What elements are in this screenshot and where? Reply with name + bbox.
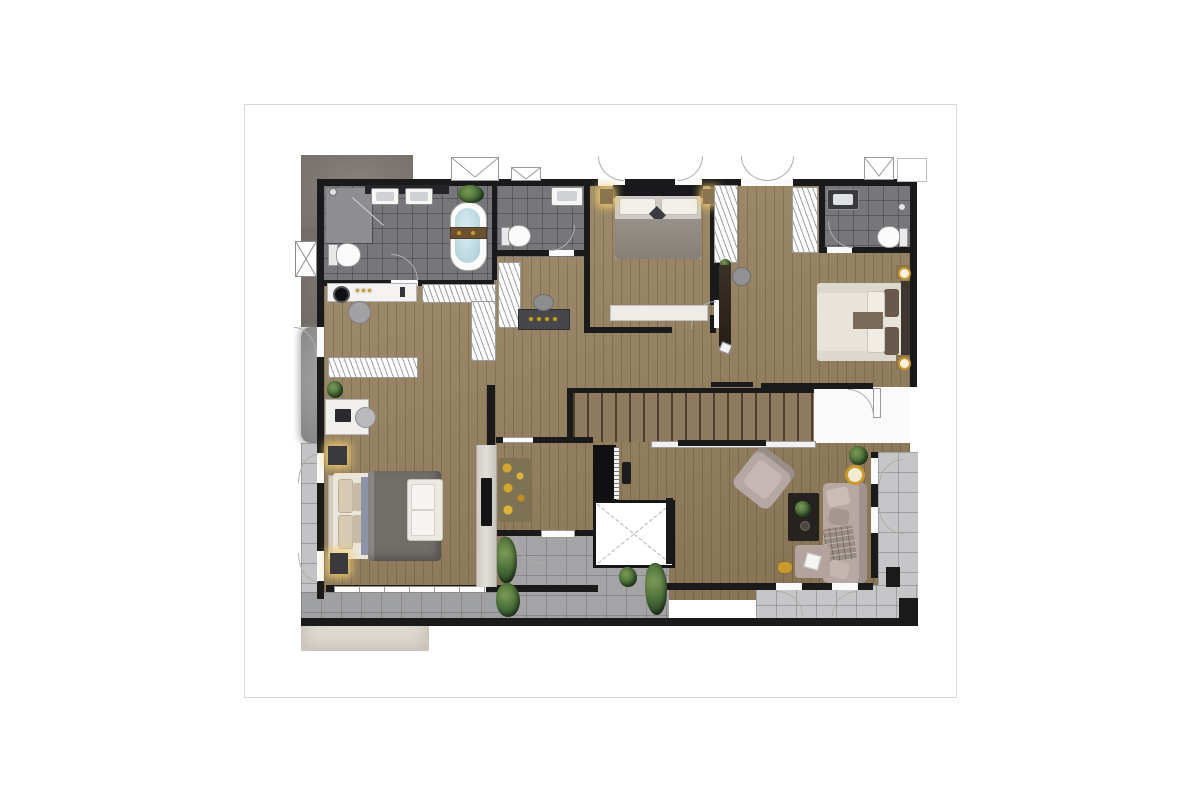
door-gap-living-bottom-a — [776, 583, 802, 590]
sofa-cushion — [411, 484, 435, 510]
vanity-bottle — [400, 287, 405, 297]
side-table-gold — [845, 465, 865, 485]
sink-1 — [371, 188, 399, 205]
window-living-right-a — [871, 458, 878, 484]
door-arc-closet-r — [767, 156, 794, 181]
vanity-item — [356, 289, 359, 292]
sink-basin — [557, 191, 577, 201]
wall-right — [910, 179, 917, 387]
vanity-item — [362, 289, 365, 292]
opening-sitting-top — [503, 437, 533, 443]
elevator-x-icon — [596, 503, 672, 565]
bed2-headboard — [901, 281, 910, 363]
window-living-right-b — [871, 507, 878, 533]
door-leaf-terrace — [541, 530, 575, 538]
vanity-item — [368, 289, 371, 292]
window-top-3 — [864, 157, 894, 180]
sofa-gold — [498, 458, 531, 522]
sideboard-knob — [545, 317, 549, 321]
wall-living-top — [678, 440, 766, 446]
door-gap-bath3 — [827, 247, 852, 253]
faucet-icon-bath3 — [898, 203, 906, 211]
plant-bathtub — [458, 185, 484, 203]
door-gap-master-balcony-b — [317, 551, 324, 581]
desk-chair — [355, 407, 376, 428]
plant-terrace-small — [619, 567, 637, 587]
sink-bath3 — [827, 189, 859, 210]
wall-corner-block-2 — [899, 598, 918, 620]
sofa-cushion — [411, 510, 435, 536]
sofa-master — [407, 479, 443, 541]
door-arc-closet-l — [741, 156, 768, 181]
plant-desk — [327, 381, 343, 398]
toilet-tank — [899, 228, 908, 247]
laptop-icon — [335, 409, 351, 422]
bed2 — [817, 281, 910, 363]
wall-mid-horizontal-2 — [711, 382, 753, 387]
bed2-runner — [853, 312, 883, 329]
shower-enclosure — [326, 188, 373, 244]
armchair-cushion — [742, 459, 784, 501]
bed1 — [613, 185, 703, 261]
door-arc-bedroom1-b — [677, 156, 703, 181]
wall-bottom-outer — [301, 618, 918, 626]
elevator-shaft — [593, 500, 675, 568]
window-frame-top-right — [897, 158, 927, 182]
toilet-bowl — [508, 225, 531, 247]
tray-icon — [800, 521, 810, 531]
wall-tv-spine — [487, 385, 495, 447]
bed1-pillow — [661, 198, 698, 215]
wardrobe-closet-right — [792, 187, 818, 253]
door-gap-living-bottom-b — [832, 583, 858, 590]
vanity-mirror — [333, 286, 350, 303]
piano-keys — [614, 447, 619, 499]
sink-basin — [833, 194, 853, 205]
staircase — [573, 392, 814, 442]
sideboard-knob — [529, 317, 533, 321]
sofa-pillow — [828, 508, 850, 527]
door-leaf-bedroom2 — [873, 388, 881, 418]
coffee-table-living — [788, 493, 819, 541]
bed-master-pillow — [338, 479, 353, 513]
door-gap-master-balcony-a — [317, 453, 324, 483]
wall-bath1-2-divider — [492, 183, 497, 280]
wall-living-left — [666, 498, 673, 564]
bed2-pillow-brown — [884, 289, 899, 317]
gold-lamp-icon — [898, 267, 911, 280]
window-band-master-bottom — [334, 586, 486, 593]
tv-icon — [481, 478, 492, 526]
floor-plan-page — [244, 104, 957, 698]
vanity-counter — [327, 283, 417, 302]
vanity-chair — [348, 301, 371, 324]
stool-closet — [732, 267, 751, 286]
sink-2 — [405, 188, 433, 205]
ottoman-living — [795, 545, 830, 578]
gold-pot-terrace — [778, 562, 792, 573]
nightstand-bed1-left — [600, 189, 613, 204]
window-left-x — [295, 241, 317, 277]
toilet-2 — [501, 225, 531, 246]
wall-mid-horizontal — [761, 383, 873, 389]
sideboard-hall — [518, 309, 570, 330]
nightstand-bed2-top — [896, 265, 910, 279]
plant-balcony-bottom-left — [496, 583, 520, 617]
console-closet — [719, 265, 731, 347]
ottoman-paper — [803, 552, 821, 570]
sofa-pillow — [825, 486, 850, 508]
piano — [593, 445, 616, 501]
wardrobe-dressing-side — [471, 301, 496, 361]
nightstand-master-bottom — [330, 553, 348, 574]
toilet-1 — [328, 242, 360, 266]
plant-coffee-table — [795, 501, 811, 517]
plant-terrace-left — [497, 537, 517, 583]
bathtub — [450, 202, 487, 271]
caddy-item — [457, 231, 461, 235]
door-arc-bedroom1-a — [598, 156, 624, 181]
bathtub-caddy — [450, 227, 487, 239]
wall-corner-block-1 — [886, 567, 900, 587]
stair-post — [567, 388, 573, 442]
window-top-2 — [511, 167, 541, 181]
toilet-3 — [877, 226, 907, 247]
bed2-pillow-white — [867, 325, 885, 353]
wall-bedroom1-left — [584, 183, 590, 333]
bench-bedroom1 — [610, 305, 708, 321]
toilet-bowl — [877, 226, 900, 248]
sink-basin — [410, 192, 428, 201]
sofa-pillow — [827, 559, 851, 580]
sideboard-knob — [553, 317, 557, 321]
shower-head-icon — [329, 188, 337, 196]
caddy-item — [471, 231, 475, 235]
door-gap-bath2 — [549, 250, 574, 256]
plant-terrace-center — [645, 563, 667, 615]
wardrobe-dressing-long — [328, 357, 418, 378]
gold-lamp-icon — [898, 357, 911, 370]
wall-closet-right — [819, 183, 825, 253]
wall-left — [317, 179, 324, 599]
nightstand-master-top — [328, 446, 347, 465]
window-top-1 — [451, 157, 499, 181]
sink-basin — [376, 192, 394, 201]
wall-bedroom1-bottom — [586, 327, 672, 333]
bed1-duvet — [615, 219, 701, 259]
bed-master-pillow — [338, 515, 353, 549]
door-gap-dressing-left — [317, 327, 324, 357]
floor-plan — [301, 155, 933, 635]
nightstand-bed2-bottom — [896, 355, 910, 369]
plant-living — [849, 446, 868, 465]
wardrobe-closet-left — [714, 185, 738, 263]
piano-bench — [622, 462, 631, 484]
bed2-pillow-brown — [884, 327, 899, 355]
sideboard-knob — [537, 317, 541, 321]
stool-hall — [533, 294, 554, 311]
sink-bath2 — [551, 187, 583, 206]
toilet-bowl — [336, 243, 361, 267]
media-wall — [476, 445, 497, 587]
